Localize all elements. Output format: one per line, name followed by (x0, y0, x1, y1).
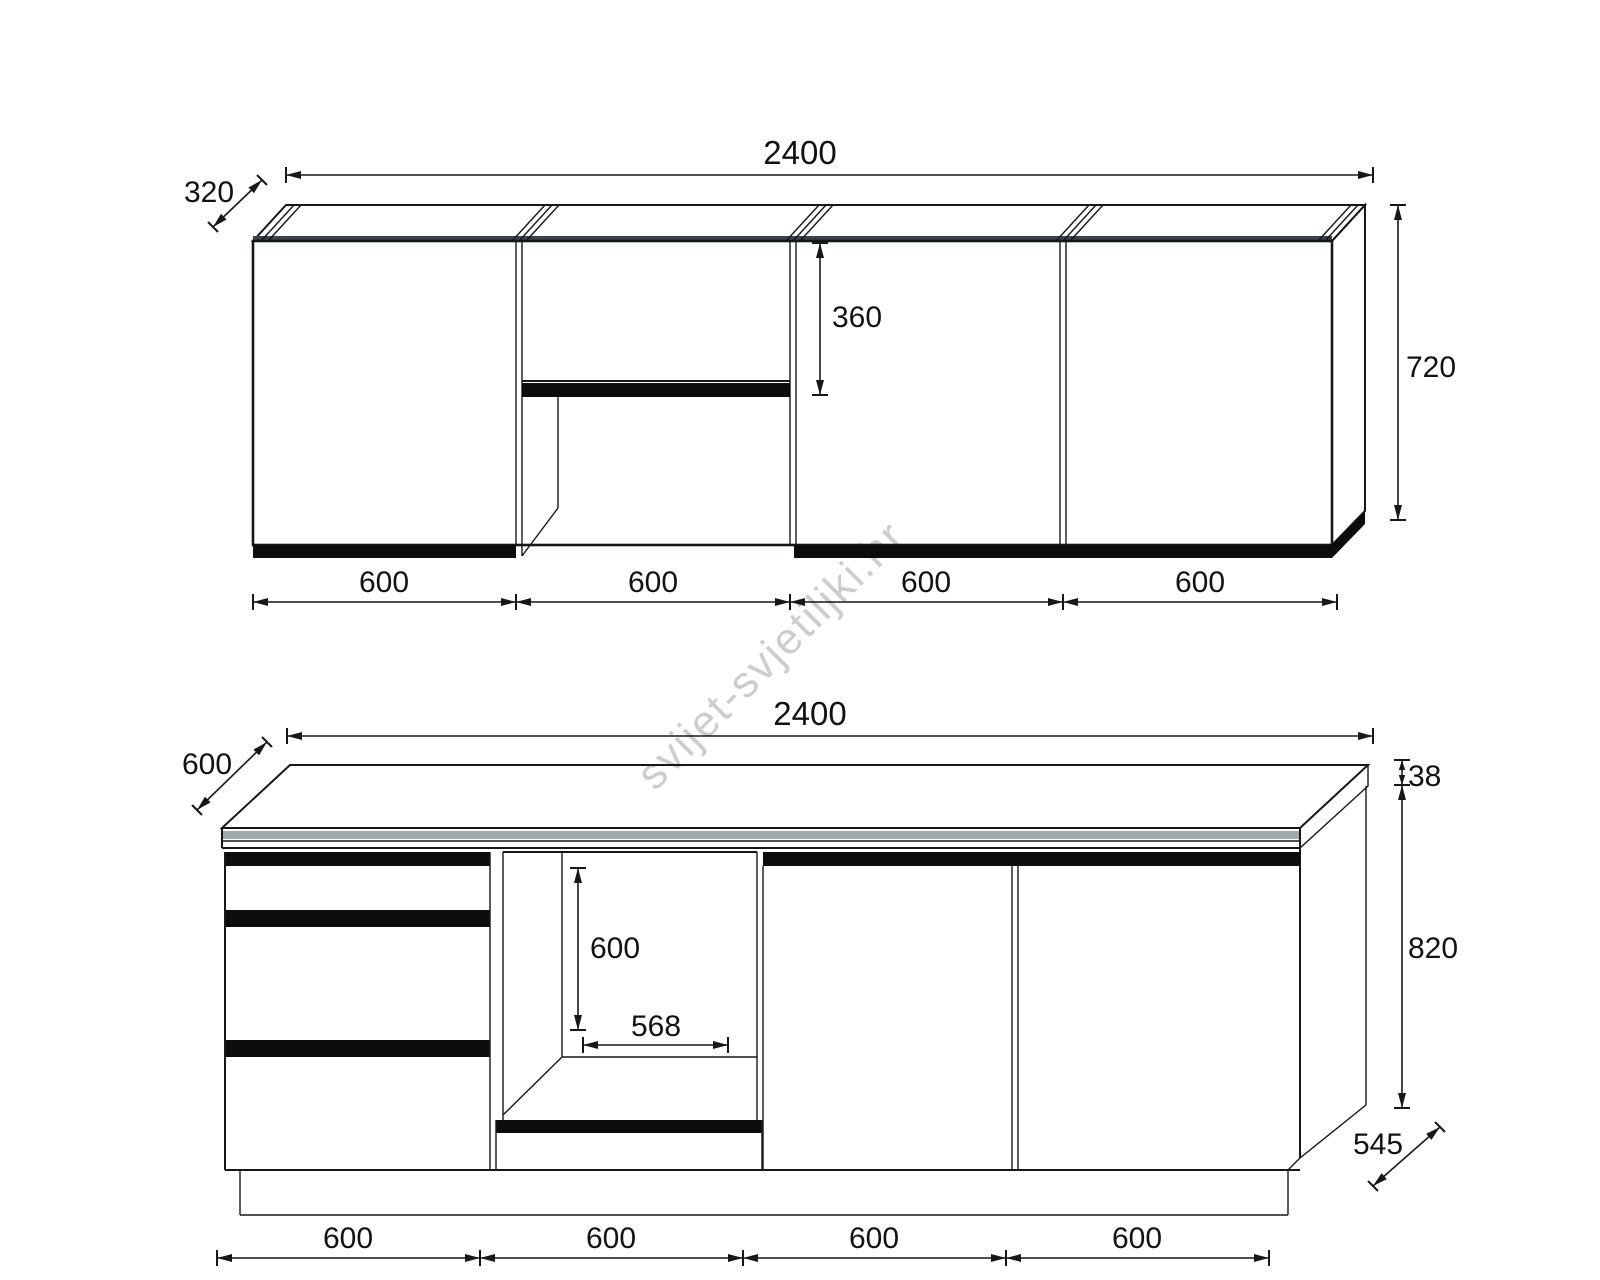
upper-dim-height: 720 (1390, 205, 1456, 520)
niche-front-edges (503, 852, 757, 1133)
base-dim-countertop-depth: 600 (182, 737, 272, 815)
base-total-width-label: 2400 (773, 695, 846, 732)
upper-bottom-strip-left (253, 545, 516, 558)
upper-niche-inner-wall (522, 397, 558, 556)
upper-section-3-label: 600 (901, 566, 951, 599)
base-niche (496, 852, 762, 1170)
niche-inner-edges (503, 852, 757, 1115)
base-drawer-unit (226, 852, 490, 1170)
upper-cabinet-drawing: 2400 320 720 360 600 600 60 (184, 134, 1456, 610)
drawer-strip-1 (226, 910, 490, 927)
upper-front-face (253, 241, 1332, 545)
base-doors (763, 852, 1300, 1170)
drawer-strip-top (226, 852, 490, 866)
base-section-1-label: 600 (323, 1222, 373, 1255)
upper-section-2-label: 600 (628, 566, 678, 599)
upper-depth-label: 320 (184, 176, 234, 209)
upper-door-gaps (516, 241, 1066, 556)
upper-side-face (1332, 205, 1365, 545)
base-dim-niche-width: 568 (583, 1010, 728, 1053)
upper-height-label: 720 (1406, 351, 1456, 384)
drawer-strip-2 (226, 1040, 490, 1057)
upper-mid-door-strip (522, 383, 790, 397)
base-height-label: 820 (1408, 932, 1458, 965)
upper-mid-door-label: 360 (832, 301, 882, 334)
niche-height-label: 600 (590, 932, 640, 965)
base-section-4-label: 600 (1112, 1222, 1162, 1255)
upper-section-4-label: 600 (1175, 566, 1225, 599)
base-dim-total-width: 2400 (287, 695, 1373, 744)
countertop-thickness-label: 38 (1408, 760, 1441, 793)
niche-width-label: 568 (631, 1010, 681, 1043)
countertop-edge-band (222, 831, 1300, 839)
countertop-side-face (1300, 765, 1368, 848)
niche-bottom-strip (496, 1120, 762, 1133)
doors-strip-top (763, 852, 1300, 866)
base-section-2-label: 600 (586, 1222, 636, 1255)
technical-drawing-page: svijet-svjetiljki.hr 2400 (0, 0, 1600, 1280)
door-gap-lines (763, 866, 1018, 1170)
upper-bottom-strip-right (794, 545, 1332, 558)
countertop-top-face (222, 765, 1368, 828)
base-plinth (240, 1158, 1300, 1215)
base-depth-label: 545 (1353, 1128, 1403, 1161)
upper-top-face-hatches (261, 205, 1358, 241)
base-dim-countertop-thickness: 38 (1394, 760, 1441, 793)
base-dim-height: 820 (1394, 785, 1458, 1108)
base-dim-depth: 545 (1353, 1122, 1445, 1191)
upper-dim-total-width: 2400 (286, 134, 1373, 183)
base-dim-sections: 600 600 600 600 (217, 1222, 1269, 1266)
base-dim-niche-height: 600 (570, 868, 640, 1030)
upper-dim-mid-door: 360 (812, 243, 882, 395)
upper-dim-depth: 320 (184, 175, 267, 232)
cabinet-dimension-drawing: svijet-svjetiljki.hr 2400 (0, 0, 1600, 1280)
base-side-panel (1300, 786, 1366, 1158)
upper-section-1-label: 600 (359, 566, 409, 599)
countertop-depth-label: 600 (182, 748, 232, 781)
upper-total-width-label: 2400 (763, 134, 836, 171)
upper-bottom-strip-side (1332, 511, 1365, 558)
base-section-3-label: 600 (849, 1222, 899, 1255)
base-cabinet-drawing: 2400 600 38 820 545 600 (182, 695, 1458, 1266)
